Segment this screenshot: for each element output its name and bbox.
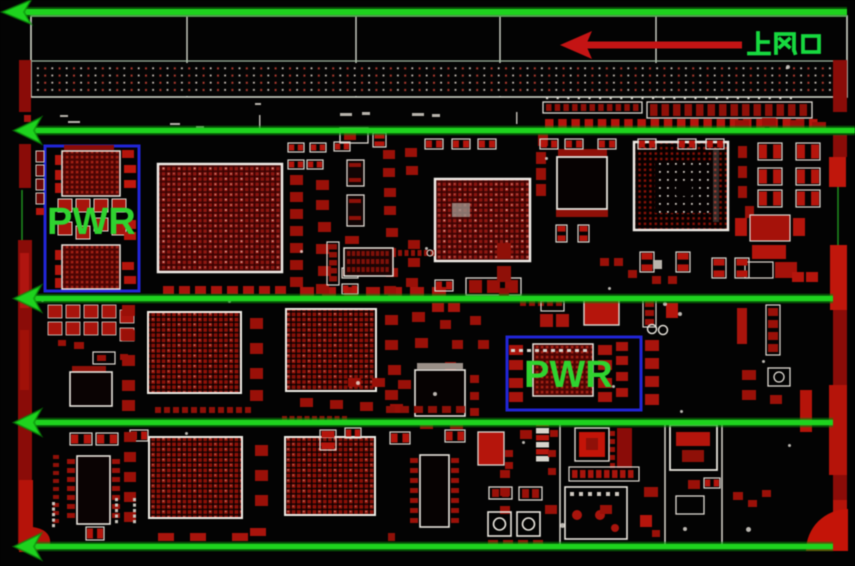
svg-text:PWR: PWR — [47, 201, 136, 243]
svg-text:PWR: PWR — [524, 354, 613, 396]
